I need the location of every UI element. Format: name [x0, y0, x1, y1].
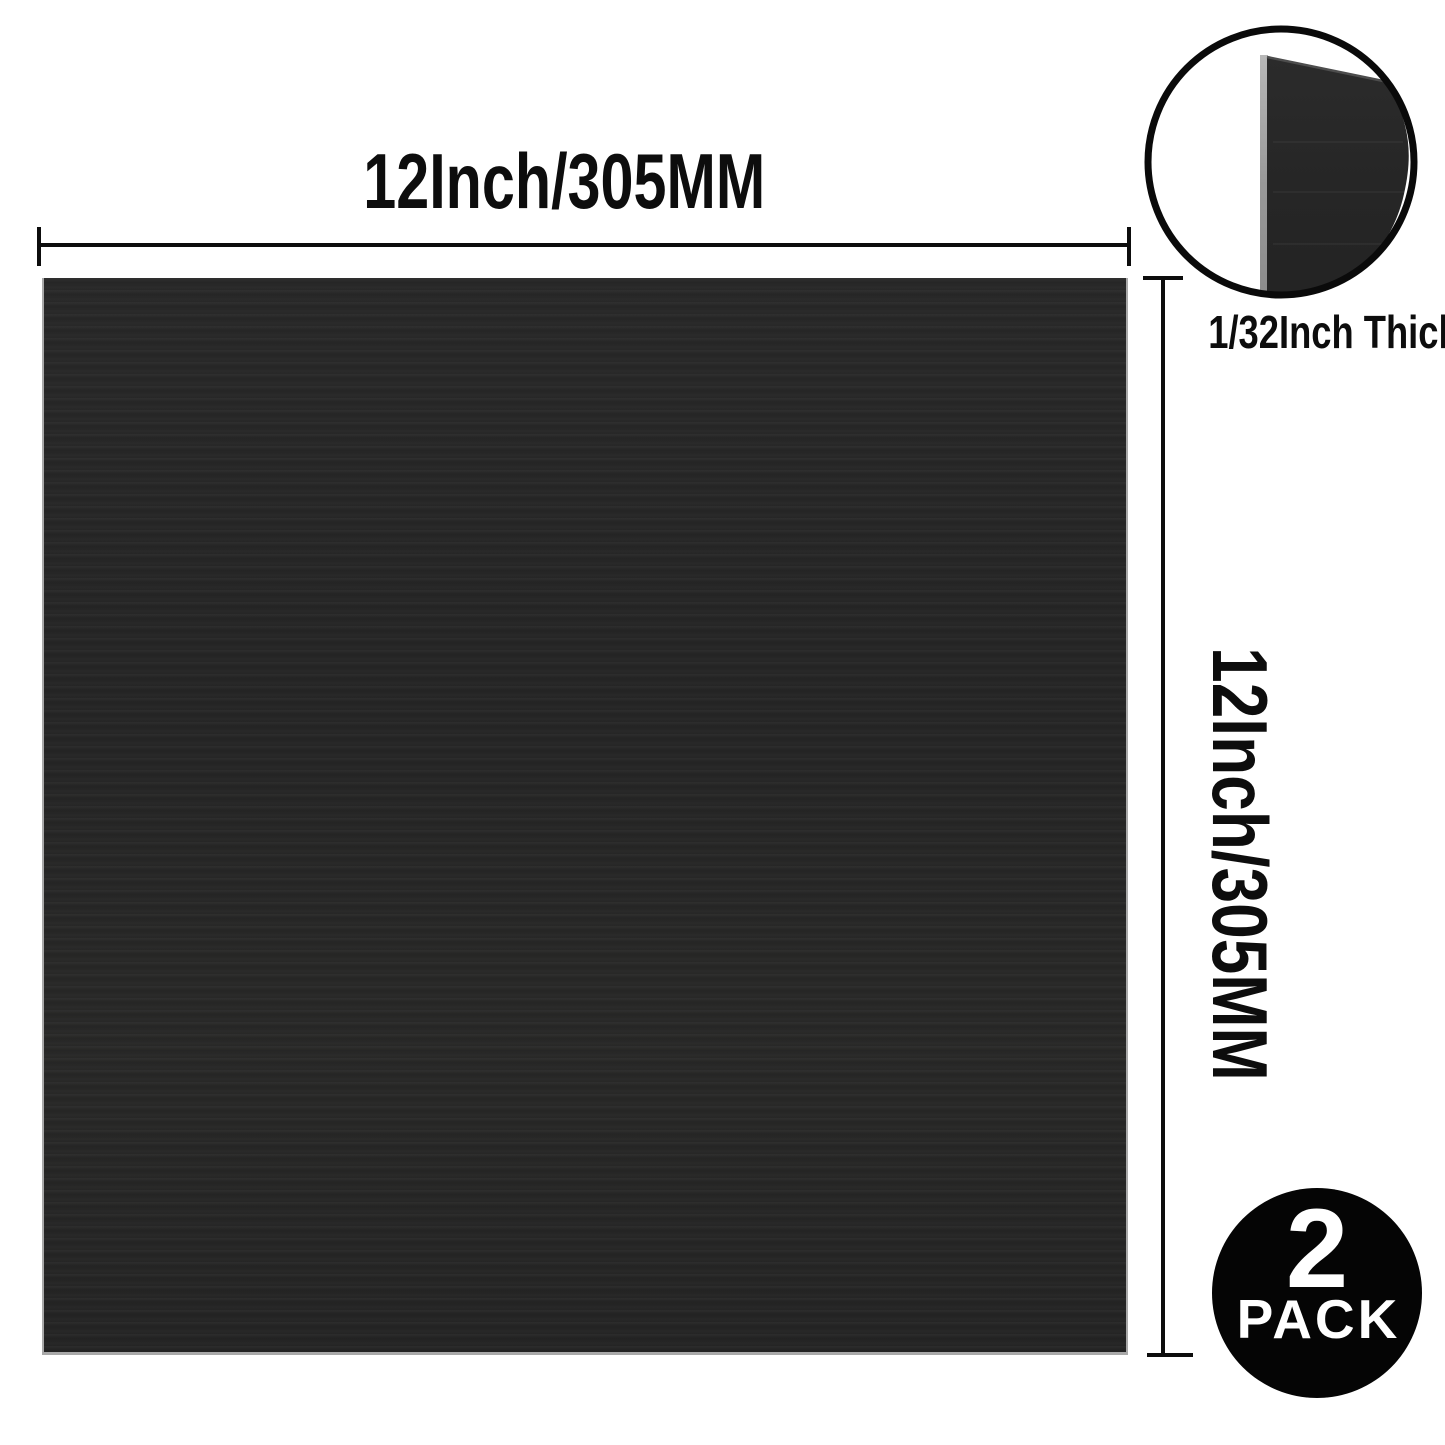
- width-dimension-tick-right: [1127, 227, 1131, 266]
- inset-sheet-thickness-edge: [1260, 55, 1268, 302]
- width-dimension-tick-left: [37, 227, 41, 266]
- pack-count-badge: 2 PACK: [1212, 1188, 1422, 1398]
- pack-count-word: PACK: [1212, 1292, 1422, 1347]
- width-dimension-label: 12Inch/305MM: [363, 142, 662, 220]
- width-dimension-line: [39, 243, 1131, 247]
- thickness-label: 1/32Inch Thick: [1208, 309, 1406, 355]
- product-sheet-image: [42, 278, 1128, 1355]
- height-dimension-label: 12Inch/305MM: [1201, 647, 1279, 1081]
- height-dimension-tick-bottom: [1147, 1353, 1193, 1357]
- inset-sheet-face: [1267, 57, 1409, 302]
- height-dimension-line: [1161, 278, 1165, 1357]
- product-dimension-diagram: 12Inch/305MM 12Inch/305MM: [0, 0, 1445, 1445]
- thickness-detail-inset: [1141, 22, 1421, 302]
